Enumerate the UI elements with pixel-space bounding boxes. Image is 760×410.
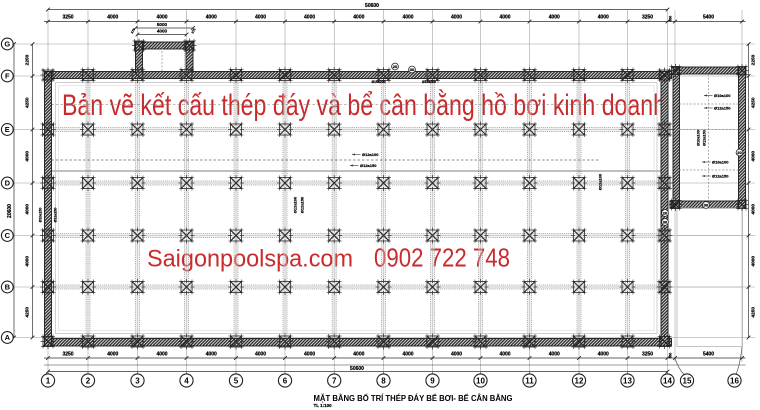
svg-text:4000: 4000 [751,256,757,267]
svg-text:4000: 4000 [206,351,217,357]
svg-text:7: 7 [332,376,337,385]
svg-text:4000: 4000 [499,14,510,20]
svg-text:2: 2 [86,376,91,385]
svg-text:4000: 4000 [499,351,510,357]
svg-text:4000: 4000 [751,151,757,162]
svg-text:4000: 4000 [304,14,315,20]
svg-text:Saigonpoolspa.com: Saigonpoolspa.com [147,246,353,273]
svg-text:30: 30 [663,220,668,225]
svg-text:Ø12a150: Ø12a150 [714,105,731,110]
svg-text:E: E [5,125,10,134]
svg-text:4000: 4000 [156,14,167,20]
svg-text:4000: 4000 [402,14,413,20]
svg-text:13: 13 [623,376,632,385]
svg-text:Ø12a100: Ø12a100 [293,196,298,213]
svg-text:3250: 3250 [642,14,653,20]
svg-text:Ø12a150: Ø12a150 [703,130,707,146]
svg-text:5400: 5400 [703,351,714,357]
svg-text:Bản vẽ kết cấu thép đáy và bể: Bản vẽ kết cấu thép đáy và bể cân bằng h… [62,89,666,122]
svg-text:3250: 3250 [642,351,653,357]
svg-text:2250: 2250 [24,54,30,65]
svg-text:8: 8 [381,376,386,385]
svg-text:9: 9 [430,376,435,385]
svg-text:4000: 4000 [24,256,30,267]
svg-text:C: C [5,231,11,240]
svg-text:4000: 4000 [156,351,167,357]
svg-text:4000: 4000 [598,351,609,357]
svg-text:4000: 4000 [549,14,560,20]
svg-text:Ø12a150: Ø12a150 [54,208,58,223]
svg-text:MẶT BẰNG BỐ TRÍ THÉP ĐÁY BỂ BƠ: MẶT BẰNG BỐ TRÍ THÉP ĐÁY BỂ BƠI- BỂ CÂN … [314,393,513,403]
svg-text:30: 30 [704,203,709,208]
svg-text:2250: 2250 [751,54,757,65]
svg-text:4250: 4250 [24,97,30,108]
svg-text:Ø10a150: Ø10a150 [39,208,43,223]
svg-text:F: F [5,72,10,81]
svg-text:B: B [5,283,11,292]
svg-text:Ø10a100: Ø10a100 [697,130,701,146]
svg-text:20: 20 [393,64,398,69]
svg-text:0902 722 748: 0902 722 748 [374,243,510,273]
svg-text:14: 14 [663,376,672,385]
svg-text:4000: 4000 [107,14,118,20]
svg-text:5400: 5400 [703,14,714,20]
svg-text:4000: 4000 [402,351,413,357]
svg-text:Ø12a100: Ø12a100 [362,152,379,157]
svg-text:20: 20 [737,150,742,155]
svg-text:1: 1 [46,376,51,385]
svg-text:4000: 4000 [157,28,168,33]
svg-text:4000: 4000 [353,14,364,20]
svg-text:16: 16 [730,376,739,385]
svg-text:50600: 50600 [350,366,364,372]
svg-text:4: 4 [184,376,189,385]
svg-text:4000: 4000 [24,204,30,215]
svg-text:4000: 4000 [598,14,609,20]
svg-text:4000: 4000 [451,351,462,357]
svg-text:600: 600 [668,16,672,22]
svg-text:4000: 4000 [751,204,757,215]
svg-text:3250: 3250 [62,351,73,357]
svg-text:4000: 4000 [304,351,315,357]
svg-text:12: 12 [575,376,584,385]
svg-text:4000: 4000 [549,351,560,357]
svg-text:4000: 4000 [451,14,462,20]
svg-text:20600: 20600 [7,204,13,218]
svg-text:15: 15 [683,376,692,385]
svg-text:5: 5 [234,376,239,385]
svg-text:Ø12a150: Ø12a150 [300,196,305,213]
svg-text:4250: 4250 [24,307,30,318]
svg-text:4000: 4000 [353,351,364,357]
svg-text:30: 30 [410,67,415,72]
svg-text:Ø12a150: Ø12a150 [712,173,729,178]
svg-text:G: G [4,40,10,49]
svg-text:A: A [5,333,11,342]
svg-text:Ø10a200: Ø10a200 [372,80,386,84]
svg-text:Ø12a150: Ø12a150 [360,163,377,168]
svg-text:Ø10a100: Ø10a100 [714,93,731,98]
svg-text:600: 600 [668,353,672,359]
svg-text:Ø10a200: Ø10a200 [422,80,436,84]
svg-text:11: 11 [525,376,534,385]
svg-text:4000: 4000 [206,14,217,20]
svg-text:10: 10 [476,376,485,385]
svg-text:D: D [5,179,11,188]
svg-text:4000: 4000 [24,151,30,162]
svg-text:3250: 3250 [62,14,73,20]
svg-text:4250: 4250 [751,97,757,108]
svg-text:50600: 50600 [365,3,379,9]
svg-text:Ø10a100: Ø10a100 [712,159,729,164]
svg-text:Ø12a100: Ø12a100 [598,173,603,190]
svg-text:4000: 4000 [107,351,118,357]
svg-text:3: 3 [135,376,140,385]
svg-text:4250: 4250 [751,307,757,318]
svg-text:20: 20 [663,211,668,216]
svg-text:4000: 4000 [255,14,266,20]
svg-text:6: 6 [283,376,288,385]
svg-text:5000: 5000 [157,22,168,27]
svg-text:4000: 4000 [255,351,266,357]
svg-text:TL 1:100: TL 1:100 [314,403,333,408]
